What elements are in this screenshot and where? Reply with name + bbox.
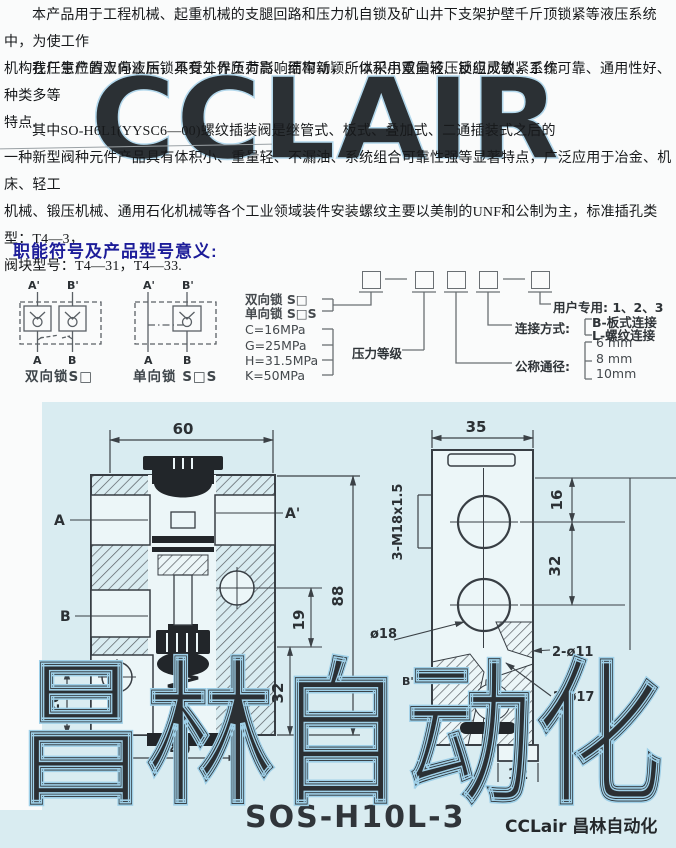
type-line-2: 单向锁 S□S: [245, 307, 317, 321]
left-dim-19: 19: [290, 610, 308, 631]
right-holes11-label: 2-ø11: [552, 645, 593, 660]
unidirectional-caption: 单向锁 S□S: [133, 365, 217, 385]
model-code-box-3: [447, 271, 466, 289]
right-dim-16: 16: [548, 490, 566, 511]
model-code-box-1: [362, 271, 381, 289]
type-line-1: 双向锁 S□: [245, 293, 308, 307]
right-holes17-label: 2-ø17: [553, 690, 594, 705]
pressure-option-g: G=25MPa: [245, 339, 307, 353]
user-label: 用户专用: 1、2、3: [553, 297, 663, 316]
unidirectional-symbol-frame: [135, 302, 216, 344]
sym2-port-b1: B': [182, 279, 194, 292]
sym1-port-b1: B': [67, 279, 79, 292]
section-title: 职能符号及产品型号意义:: [13, 237, 218, 262]
left-view-port-b: B: [60, 609, 71, 625]
right-dim-35: 35: [466, 418, 487, 436]
right-view: 3-M18x1.5 35 16 32 ø18 B': [370, 418, 676, 783]
right-thread-label: 3-M18x1.5: [391, 484, 406, 561]
diameter-option-10: 10mm: [596, 367, 636, 381]
left-view: A A' B 60 88 20: [45, 420, 360, 764]
scan-background-corner: [0, 810, 42, 848]
bidirectional-symbol-frame: [20, 302, 101, 344]
right-dia18-label: ø18: [370, 627, 397, 642]
left-view-port-a: A: [54, 513, 65, 529]
model-code-box-2: [415, 271, 434, 289]
right-dim-12: 12: [508, 765, 529, 783]
left-dim-88: 88: [329, 586, 347, 607]
left-dim-40: 40: [170, 740, 191, 758]
model-code-box-5: [531, 271, 550, 289]
left-dim-32: 32: [269, 683, 287, 704]
pressure-option-c: C=16MPa: [245, 323, 306, 337]
technical-drawing: A A' B 60 88 20: [40, 400, 676, 848]
drawing-model-number: SOS-H10L-3: [245, 800, 465, 835]
pressure-option-h: H=31.5MPa: [245, 354, 318, 368]
sym2-port-a1: A': [143, 279, 155, 292]
hydraulic-symbols: A' B' A B A' B' A B: [15, 278, 230, 370]
sym1-port-a1: A': [28, 279, 40, 292]
right-dim-32: 32: [546, 556, 564, 577]
model-code-box-4: [479, 271, 498, 289]
left-view-port-a1: A': [285, 506, 300, 522]
page: CCLAIR 本产品用于工程机械、起重机械的支腿回路和压力机自锁及矿山井下支架护…: [0, 0, 676, 848]
diameter-option-8: 8 mm: [596, 352, 632, 366]
brand-label: CCLair 昌林自动化: [505, 812, 657, 837]
diameter-option-6: 6 mm: [596, 336, 632, 350]
pressure-label: 压力等级: [352, 343, 402, 362]
diameter-label: 公称通径:: [515, 356, 570, 375]
left-dim-20: 20: [45, 693, 63, 714]
left-dim-60: 60: [173, 420, 194, 438]
right-port-b1: B': [402, 675, 414, 688]
bidirectional-caption: 双向锁S□: [25, 365, 93, 385]
connection-label: 连接方式:: [515, 318, 570, 337]
pressure-option-k: K=50MPa: [245, 369, 305, 383]
